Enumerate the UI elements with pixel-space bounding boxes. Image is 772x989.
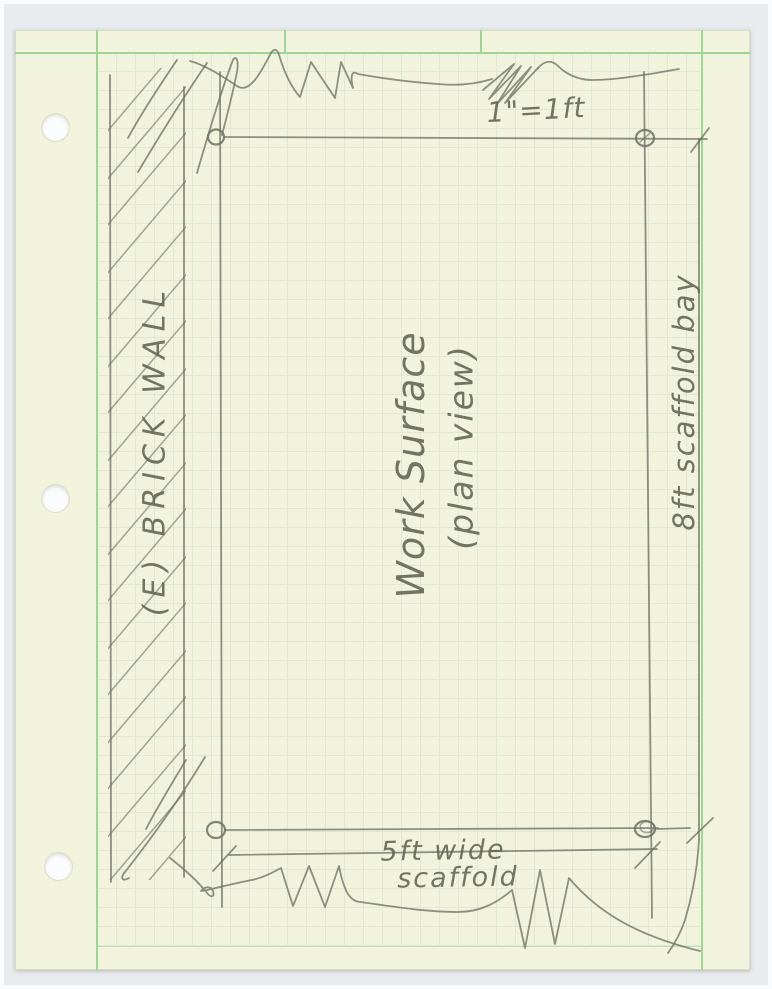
- brick-wall-label: (E) BRICK WALL: [138, 284, 173, 616]
- margin-line-bottom: [97, 946, 701, 947]
- plan-view-label: (plan view): [442, 344, 481, 549]
- hole-punch-bottom: [45, 853, 72, 880]
- margin-tick-top-1: [284, 30, 286, 53]
- paper-sheet: [15, 30, 750, 970]
- hole-punch-top: [42, 114, 69, 141]
- scale-note: 1"=1ft: [486, 91, 586, 129]
- work-surface-label: Work Surface: [389, 331, 433, 598]
- width-dimension-label-line2: scaffold: [397, 861, 519, 894]
- margin-line-left: [96, 30, 98, 970]
- margin-tick-top-2: [480, 30, 482, 53]
- scanned-page-background: (E) BRICK WALL Work Surface (plan view) …: [0, 0, 772, 989]
- margin-line-top: [15, 52, 750, 54]
- margin-line-right: [701, 30, 703, 970]
- hole-punch-middle: [42, 485, 69, 512]
- bay-dimension-label: 8ft scaffold bay: [667, 273, 701, 530]
